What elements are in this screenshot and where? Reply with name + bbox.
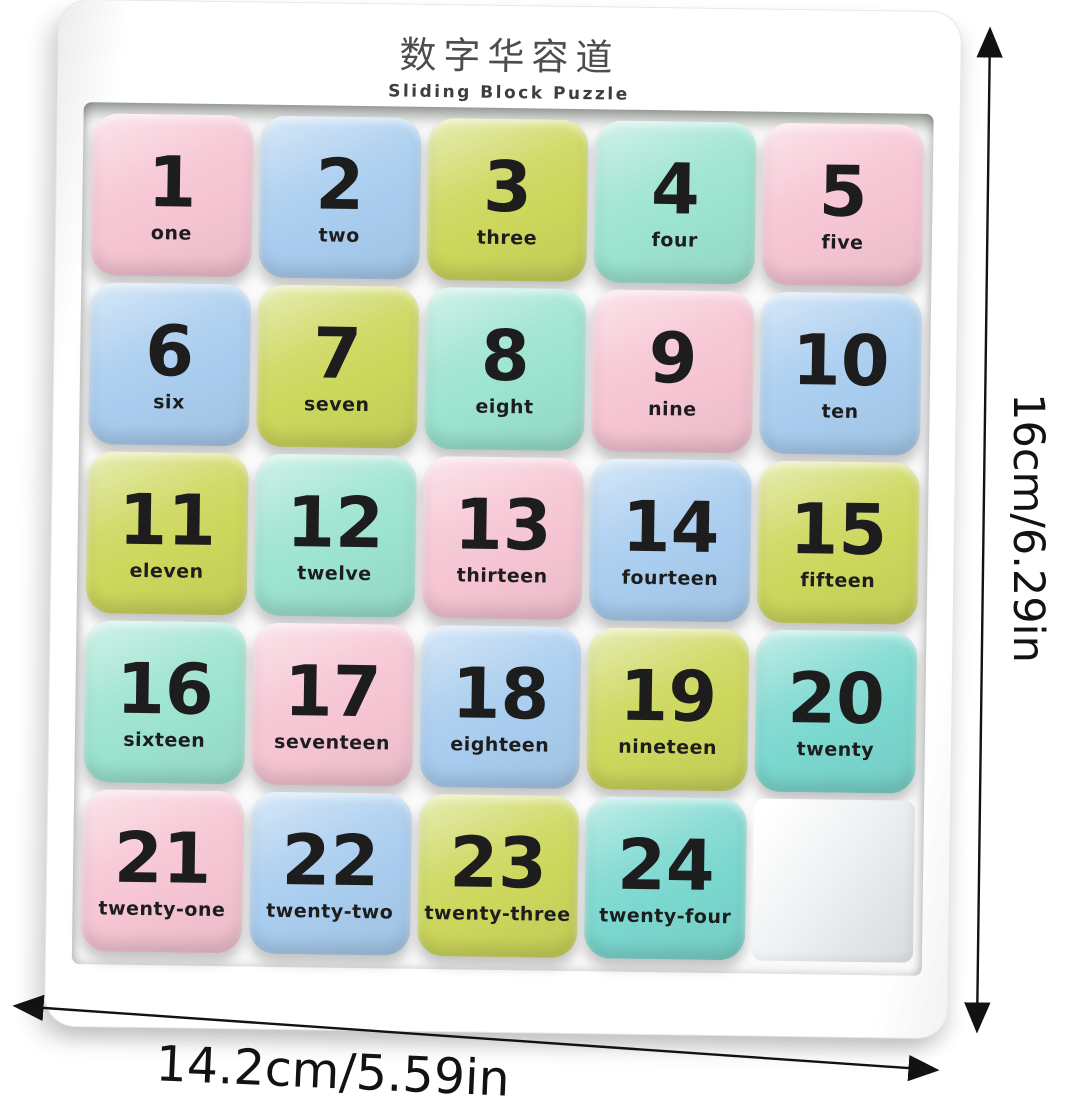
puzzle-tile[interactable]: 14 fourteen xyxy=(589,458,752,622)
puzzle-tile[interactable]: 19 nineteen xyxy=(587,627,750,791)
height-dimension-label: 16cm/6.29in xyxy=(1003,393,1053,663)
tile-number: 14 xyxy=(622,491,720,562)
puzzle-tile[interactable]: 21 twenty-one xyxy=(81,789,244,953)
tile-number: 23 xyxy=(449,827,547,898)
puzzle-tile[interactable]: 22 twenty-two xyxy=(249,792,412,956)
puzzle-tile[interactable]: 12 twelve xyxy=(253,454,416,618)
height-dimension-arrow xyxy=(977,30,990,1030)
puzzle-tile[interactable]: 9 nine xyxy=(591,289,754,453)
puzzle-tile[interactable]: 4 four xyxy=(594,120,757,284)
tile-number: 24 xyxy=(617,829,715,900)
tile-number: 11 xyxy=(118,484,216,555)
tile-number: 19 xyxy=(619,660,717,731)
tile-number: 9 xyxy=(648,323,698,394)
tile-number: 8 xyxy=(480,320,530,391)
puzzle-tile[interactable]: 13 thirteen xyxy=(421,456,584,620)
tile-number: 21 xyxy=(113,822,211,893)
tile-word: twenty-four xyxy=(599,904,731,928)
puzzle-tile[interactable]: 23 twenty-three xyxy=(416,794,579,958)
tile-word: sixteen xyxy=(123,728,205,751)
tile-number: 6 xyxy=(145,315,195,386)
tile-word: fifteen xyxy=(800,569,875,592)
puzzle-tile[interactable]: 24 twenty-four xyxy=(584,796,747,960)
puzzle-tile[interactable]: 8 eight xyxy=(424,287,587,451)
tile-number: 22 xyxy=(281,824,379,895)
width-dimension-label: 14.2cm/5.59in xyxy=(155,1035,511,1103)
tile-word: twenty xyxy=(796,738,874,761)
board-header: 数字华容道 Sliding Block Puzzle xyxy=(58,20,961,110)
tile-number: 18 xyxy=(451,658,549,729)
puzzle-tile[interactable]: 5 five xyxy=(761,123,924,287)
tile-word: thirteen xyxy=(457,564,548,587)
tile-word: one xyxy=(151,222,192,245)
puzzle-tile[interactable]: 10 ten xyxy=(759,292,922,456)
tile-word: twelve xyxy=(297,562,372,585)
puzzle-tile[interactable]: 3 three xyxy=(426,118,589,282)
puzzle-tile[interactable]: 16 sixteen xyxy=(83,620,246,784)
tile-number: 15 xyxy=(789,494,887,565)
tile-grid: 1 one 2 two 3 three 4 four 5 five 6 six … xyxy=(81,113,925,963)
tile-number: 17 xyxy=(284,655,382,726)
tile-word: eight xyxy=(475,395,533,418)
tile-word: seventeen xyxy=(274,730,390,754)
tile-word: seven xyxy=(304,393,370,416)
tile-word: eighteen xyxy=(450,733,549,756)
product-image: 数字华容道 Sliding Block Puzzle 1 one 2 two 3… xyxy=(0,0,1066,1103)
tile-number: 7 xyxy=(313,318,363,389)
tile-word: fourteen xyxy=(622,566,719,589)
puzzle-tile[interactable]: 15 fifteen xyxy=(757,461,920,625)
tile-number: 5 xyxy=(818,156,868,227)
puzzle-tile[interactable]: 17 seventeen xyxy=(251,623,414,787)
tile-number: 4 xyxy=(651,154,701,225)
tile-number: 1 xyxy=(147,147,197,218)
tile-word: two xyxy=(318,224,360,247)
tile-number: 2 xyxy=(315,149,365,220)
tile-number: 3 xyxy=(483,151,533,222)
tile-number: 20 xyxy=(787,662,885,733)
tile-number: 12 xyxy=(286,486,384,557)
tile-word: nine xyxy=(648,398,697,421)
tile-word: five xyxy=(821,231,863,254)
puzzle-tile[interactable]: 1 one xyxy=(90,113,253,277)
board-title-chinese: 数字华容道 xyxy=(58,20,961,87)
tile-word: twenty-two xyxy=(266,899,393,923)
tile-word: nineteen xyxy=(618,735,717,758)
puzzle-tile[interactable]: 7 seven xyxy=(256,285,419,449)
tile-word: twenty-one xyxy=(98,897,225,921)
puzzle-tile[interactable]: 6 six xyxy=(88,282,251,446)
puzzle-tile[interactable]: 11 eleven xyxy=(86,451,249,615)
puzzle-board: 数字华容道 Sliding Block Puzzle 1 one 2 two 3… xyxy=(45,0,961,1038)
tile-number: 13 xyxy=(454,489,552,560)
empty-slot xyxy=(752,799,915,963)
puzzle-tile[interactable]: 2 two xyxy=(258,116,421,280)
tile-word: three xyxy=(477,226,538,249)
tile-word: four xyxy=(651,229,698,252)
tile-word: eleven xyxy=(129,559,203,582)
tile-word: ten xyxy=(821,400,858,423)
tile-number: 16 xyxy=(116,653,214,724)
puzzle-tray: 1 one 2 two 3 three 4 four 5 five 6 six … xyxy=(72,102,934,976)
puzzle-tile[interactable]: 20 twenty xyxy=(754,630,917,794)
puzzle-tile[interactable]: 18 eighteen xyxy=(419,625,582,789)
tile-word: twenty-three xyxy=(424,901,570,925)
tile-number: 10 xyxy=(792,325,890,396)
tile-word: six xyxy=(153,391,185,413)
